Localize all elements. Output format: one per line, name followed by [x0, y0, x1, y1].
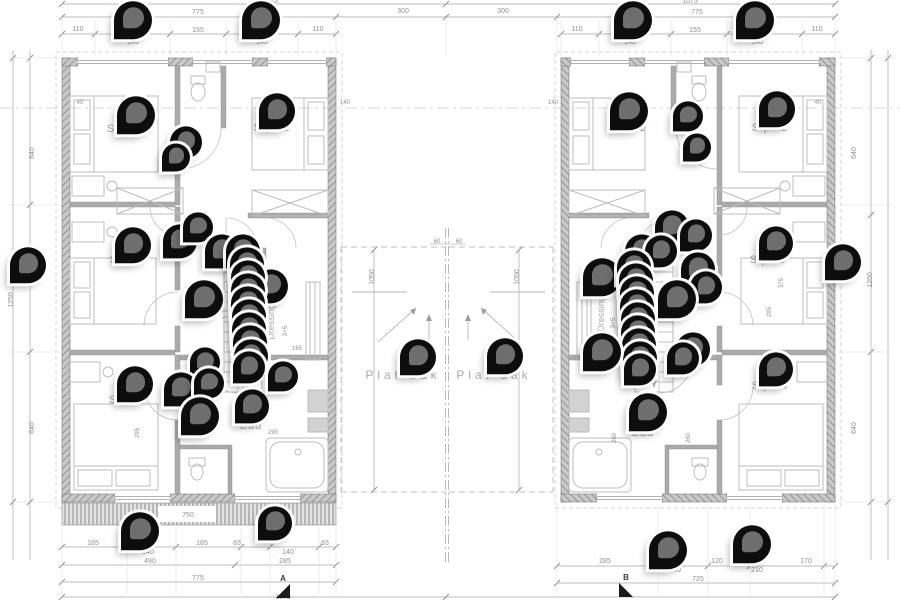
dim-label: 185 — [87, 540, 99, 547]
room-label-dressing-left: Dressing — [266, 304, 276, 340]
room-label-dressing-right: Dressing — [596, 296, 606, 332]
dim-label: 210 — [751, 567, 763, 574]
map-pin[interactable] — [733, 525, 771, 563]
map-pin[interactable] — [117, 366, 153, 402]
dim-label: 40 — [77, 100, 84, 106]
map-pin[interactable] — [194, 368, 224, 398]
section-markers: AB — [276, 573, 633, 598]
dim-label: 375 — [779, 277, 785, 288]
dim-label: 185 — [196, 540, 208, 547]
dim-label: 260 — [612, 432, 618, 443]
dim-label: 140 — [127, 39, 139, 46]
floorplan-drawing: 1075107577530030077511015511014014011015… — [0, 0, 900, 600]
dim-label: 1050 — [369, 269, 376, 285]
map-pin[interactable] — [583, 258, 621, 296]
dim-label: 640 — [29, 422, 36, 434]
dim-label: 775 — [192, 9, 204, 16]
floorplan-canvas: 1075107577530030077511015511014014011015… — [0, 0, 900, 600]
dim-label: 295 — [767, 306, 773, 317]
dim-label: 1250 — [8, 292, 15, 308]
dim-label: 750 — [182, 512, 194, 519]
map-pin[interactable] — [162, 143, 190, 171]
map-pin[interactable] — [259, 93, 295, 129]
map-pin[interactable] — [629, 393, 667, 431]
dim-label: 725 — [692, 576, 704, 583]
dim-label: 300 — [397, 8, 409, 15]
dim-label: 140 — [340, 100, 351, 106]
dim-label: 295 — [135, 427, 141, 438]
dim-label: 140 — [282, 549, 294, 556]
dim-label: 83 — [233, 540, 241, 547]
map-pin[interactable] — [114, 1, 152, 39]
dim-label: 640 — [29, 147, 36, 159]
dim-label: 40 — [815, 100, 822, 106]
dim-label: 60 — [434, 239, 441, 245]
dim-label: 140 — [751, 39, 763, 46]
map-pin[interactable] — [117, 96, 155, 134]
dim-label: 165 — [292, 346, 303, 352]
dim-label: 120 — [711, 558, 723, 565]
map-pin[interactable] — [680, 219, 712, 251]
dim-label: 155 — [192, 27, 204, 34]
terrace-hatch — [62, 503, 336, 525]
map-pin[interactable] — [649, 531, 687, 569]
map-pin[interactable] — [233, 351, 265, 383]
dim-label: 140 — [142, 549, 154, 556]
dim-label: 3+5 — [282, 325, 289, 336]
map-pin[interactable] — [583, 333, 621, 371]
dim-label: 640 — [851, 422, 858, 434]
dim-label: 110 — [811, 26, 822, 33]
dim-label: 775 — [192, 575, 204, 582]
map-pin[interactable] — [658, 280, 696, 318]
dim-label: 300 — [497, 8, 509, 15]
dim-label: 285 — [599, 558, 611, 565]
map-pin[interactable] — [610, 92, 648, 130]
map-pin[interactable] — [115, 227, 151, 263]
map-pin[interactable] — [736, 1, 774, 39]
dim-label: 490 — [144, 558, 156, 565]
dim-label: 170 — [800, 558, 812, 565]
dim-label: 155 — [689, 27, 701, 34]
dim-label: 260 — [686, 432, 692, 443]
dim-label: 1050 — [514, 269, 521, 285]
map-pin[interactable] — [759, 91, 795, 127]
section-letter-B: B — [623, 573, 629, 582]
dim-label: 285 — [279, 558, 291, 565]
map-pin[interactable] — [759, 352, 793, 386]
map-pin[interactable] — [185, 280, 223, 318]
map-pin[interactable] — [242, 1, 280, 39]
dim-label: 110 — [312, 26, 323, 33]
dim-label: 110 — [571, 26, 582, 33]
dim-label: 83 — [321, 540, 329, 547]
dim-total-right: 1075 — [682, 0, 698, 5]
map-pin[interactable] — [673, 101, 703, 131]
map-pin[interactable] — [10, 247, 46, 283]
map-pin[interactable] — [614, 1, 652, 39]
dim-label: 140 — [256, 39, 268, 46]
map-pin[interactable] — [183, 212, 213, 242]
dim-label: 140 — [624, 39, 636, 46]
map-pin[interactable] — [624, 353, 656, 385]
dim-label: 140 — [548, 100, 559, 106]
map-pin[interactable] — [683, 133, 711, 161]
map-pin[interactable] — [667, 342, 699, 374]
map-pin[interactable] — [487, 338, 523, 374]
dim-label: 775 — [691, 9, 703, 16]
map-pin[interactable] — [181, 397, 219, 435]
map-pin[interactable] — [400, 339, 436, 375]
section-triangle-B — [619, 583, 633, 597]
dim-label: 3+5 — [610, 317, 617, 328]
section-triangle-A — [276, 584, 290, 598]
dim-label: 640 — [851, 147, 858, 159]
dim-label: 1250 — [867, 272, 874, 288]
map-pin[interactable] — [235, 389, 269, 423]
slope-arrows — [352, 292, 545, 342]
dim-label: 60 — [456, 239, 463, 245]
map-pin[interactable] — [825, 244, 861, 280]
section-letter-A: A — [280, 574, 286, 583]
dim-label: 110 — [72, 26, 83, 33]
map-pin[interactable] — [759, 226, 793, 260]
map-pin[interactable] — [121, 512, 159, 550]
map-pin[interactable] — [258, 506, 292, 540]
map-pin[interactable] — [268, 361, 298, 391]
dim-label: 290 — [268, 430, 279, 436]
